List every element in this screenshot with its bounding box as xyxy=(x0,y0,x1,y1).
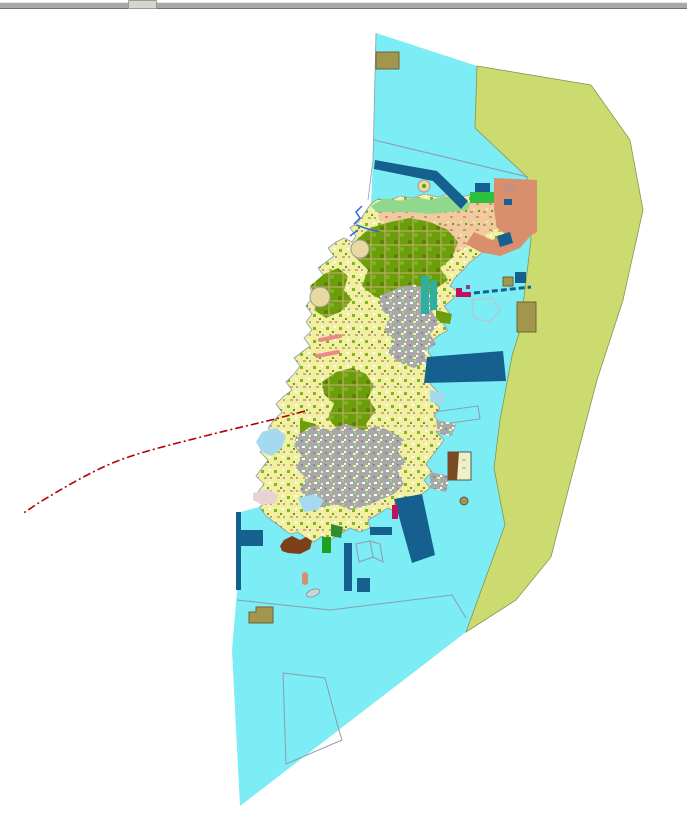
offshore-circle-dot xyxy=(422,184,426,188)
navy-square-east xyxy=(515,272,526,283)
map-canvas[interactable] xyxy=(0,0,687,821)
coast-circle-feature-1 xyxy=(351,240,369,258)
khaki-parcel-east-small xyxy=(503,277,513,286)
khaki-parcel-north xyxy=(376,52,399,69)
navy-pier-southcoast xyxy=(370,527,392,535)
teal-parcel-2 xyxy=(430,280,437,310)
salmon-islet xyxy=(302,572,308,585)
mixed-parcel-southeast xyxy=(448,452,471,480)
coast-circle-feature-2 xyxy=(310,287,330,307)
splitter-drag-handle[interactable] xyxy=(128,0,157,9)
crimson-sliver-south xyxy=(392,505,398,519)
navy-dot-salmon xyxy=(504,199,512,205)
navy-bar-southwest xyxy=(344,543,352,591)
green-parcel-north xyxy=(470,192,494,203)
green-parcel-southcoast xyxy=(322,537,331,553)
navy-rect-north xyxy=(475,183,490,192)
landuse-map xyxy=(0,0,687,821)
teal-parcel-1 xyxy=(421,276,429,314)
window-top-edge xyxy=(0,2,687,9)
khaki-parcel-east-large xyxy=(517,302,536,332)
navy-square-southwest xyxy=(357,578,370,592)
olive-dot-southeast xyxy=(460,497,468,505)
